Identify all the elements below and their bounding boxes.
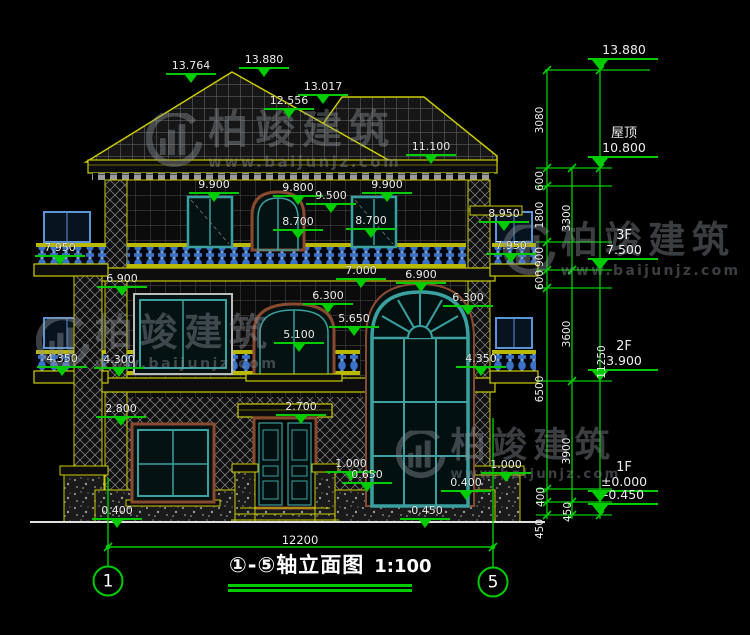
- door-canopy: [238, 404, 332, 417]
- floor-level-marker: 3F7.500: [588, 229, 660, 270]
- chain-dimension: 1800: [534, 202, 546, 229]
- elevation-drawing: [0, 0, 750, 635]
- title-scale: 1:100: [374, 556, 431, 577]
- chain-dimension: 3900: [561, 438, 573, 465]
- cornice: [88, 160, 497, 180]
- title-underline: [228, 589, 412, 592]
- roof: [86, 72, 497, 162]
- chain-dimension: 450: [534, 519, 546, 539]
- window-2f-left: [134, 294, 232, 374]
- chain-dimension: 900: [534, 247, 546, 267]
- chain-dimension: 3600: [561, 321, 573, 348]
- window-3f-right: [352, 197, 396, 247]
- window-1f-left: [126, 424, 220, 506]
- floor-level-marker: 13.880: [588, 29, 660, 70]
- arched-window-large: [366, 284, 474, 506]
- chain-dimension: 600: [534, 270, 546, 290]
- level-triangle-icon: [592, 505, 608, 515]
- chain-dimension: 400: [535, 487, 547, 507]
- left-wing: [34, 212, 108, 522]
- drawing-title: ①-⑤轴立面图1:100: [229, 549, 432, 579]
- chain-dimension: 6500: [534, 376, 546, 403]
- chain-dimension: 3080: [534, 107, 546, 134]
- floor-elevation: 13.880: [588, 44, 660, 58]
- chain-dimension: 600: [534, 171, 546, 191]
- axis-bubble-1: 1: [93, 566, 124, 597]
- window-2f-center: [246, 304, 342, 381]
- floor-elevation: 10.800: [588, 142, 660, 156]
- chain-dimension: 450: [562, 502, 574, 522]
- floor-elevation: -0.450: [588, 489, 660, 503]
- title-underline: [228, 584, 412, 587]
- cad-elevation-screenshot: 柏竣建筑 www.baijunjz.com 柏竣建筑 www.baijunjz.…: [0, 0, 750, 635]
- floor-level-marker: 屋顶10.800: [588, 127, 660, 168]
- level-triangle-icon: [592, 260, 608, 270]
- level-triangle-icon: [592, 158, 608, 168]
- title-text: ①-⑤轴立面图: [229, 553, 364, 577]
- level-triangle-icon: [592, 60, 608, 70]
- window-3f-center: [252, 192, 304, 250]
- floor-level-marker: -0.450: [588, 474, 660, 515]
- window-3f-left: [188, 197, 232, 247]
- axis-bubble-5: 5: [478, 567, 509, 598]
- chain-dimension: 11250: [596, 345, 608, 378]
- entry-door: [254, 418, 316, 508]
- chain-dimension: 3300: [561, 205, 573, 232]
- overall-width-dimension: 12200: [282, 533, 319, 547]
- floor-elevation: 7.500: [588, 244, 660, 258]
